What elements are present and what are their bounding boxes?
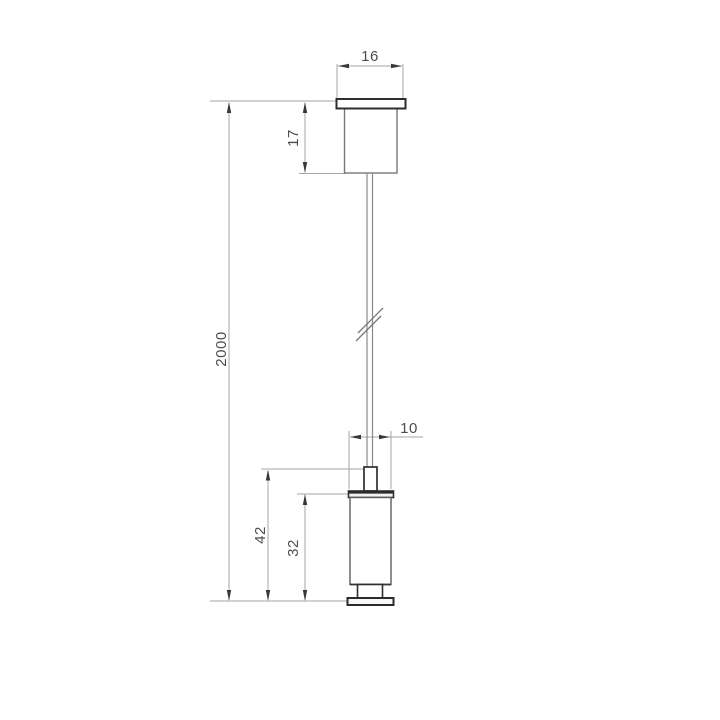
- technical-drawing: 2000 17 16 10 42 32: [0, 0, 720, 720]
- dim-label-17: 17: [285, 129, 302, 147]
- arrow-down: [266, 590, 270, 601]
- dim-label-32: 32: [285, 539, 302, 557]
- ceiling-mount: [337, 99, 406, 173]
- dimension-gripper-total-height: 42: [252, 469, 364, 601]
- arrow-right: [379, 435, 390, 439]
- dimension-cable-length: 2000: [213, 102, 231, 601]
- reference-lines: [210, 101, 347, 601]
- arrow-up: [266, 470, 270, 481]
- gripper-inlet-nipple: [364, 467, 377, 491]
- dim-label-10: 10: [400, 420, 418, 437]
- dim-label-2000: 2000: [213, 331, 230, 366]
- gripper-body: [350, 498, 391, 585]
- dimension-flange-width: 16: [337, 48, 403, 98]
- arrow-left: [338, 64, 349, 68]
- dim-label-16: 16: [361, 48, 379, 65]
- cable-gripper: [348, 467, 394, 605]
- arrow-right: [391, 64, 402, 68]
- dimension-gripper-body-height: 32: [285, 494, 349, 601]
- arrow-down: [227, 590, 231, 601]
- arrow-up: [303, 494, 307, 505]
- arrow-up: [227, 102, 231, 113]
- canopy-flange: [337, 99, 406, 109]
- cable-break-symbol: [356, 308, 383, 341]
- canopy-body: [345, 109, 398, 174]
- dimension-gripper-diameter: 10: [349, 420, 423, 489]
- dimension-canopy-height: 17: [285, 102, 346, 174]
- arrow-left: [350, 435, 361, 439]
- gripper-neck: [358, 585, 383, 599]
- break-line-lower: [356, 316, 381, 341]
- arrow-down: [303, 590, 307, 601]
- arrow-up: [303, 102, 307, 113]
- arrow-down: [303, 162, 307, 173]
- drawing-canvas: 2000 17 16 10 42 32: [0, 0, 720, 720]
- gripper-base-flange: [348, 598, 394, 605]
- dim-label-42: 42: [252, 526, 269, 544]
- break-line-upper: [358, 308, 383, 333]
